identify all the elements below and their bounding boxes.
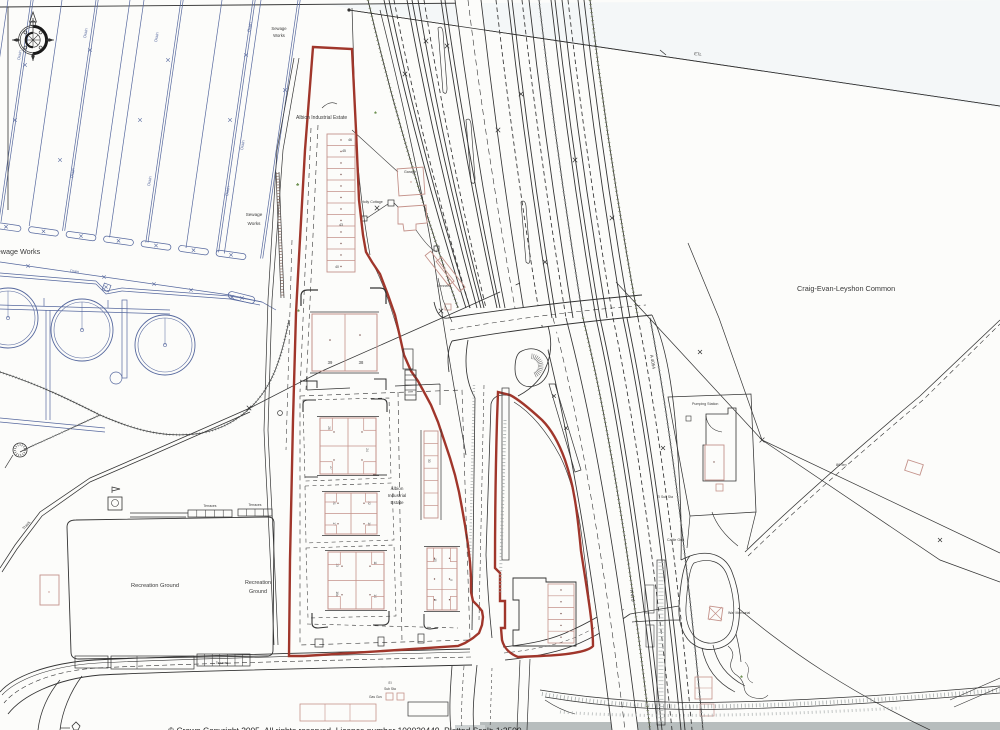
svg-text:♣: ♣ <box>297 308 300 313</box>
svg-text:© Crown Copyright 2005. All ri: © Crown Copyright 2005. All rights reser… <box>168 726 522 730</box>
svg-text:43: 43 <box>339 223 343 227</box>
svg-text:Estate: Estate <box>390 500 403 505</box>
svg-text:Industrial: Industrial <box>388 493 407 498</box>
svg-text:16a: 16a <box>335 591 339 597</box>
svg-text:86.9m: 86.9m <box>836 463 847 467</box>
svg-text:Cattle Grid: Cattle Grid <box>667 538 684 542</box>
svg-text:Works: Works <box>273 33 285 38</box>
svg-text:14: 14 <box>373 594 377 598</box>
svg-text:Ground: Ground <box>249 589 267 595</box>
svg-text:Sewage: Sewage <box>246 212 263 217</box>
svg-text:Works: Works <box>248 221 262 226</box>
svg-text:El Sub Sta: El Sub Sta <box>657 495 673 499</box>
svg-text:Pumping Station: Pumping Station <box>692 402 718 406</box>
svg-text:Kennels: Kennels <box>437 284 450 288</box>
svg-text:Gas Gov: Gas Gov <box>369 695 382 699</box>
svg-text:♣: ♣ <box>740 674 743 679</box>
svg-text:Sewage: Sewage <box>271 26 287 31</box>
svg-text:Albion Industrial Estate: Albion Industrial Estate <box>296 115 347 121</box>
svg-text:45: 45 <box>342 149 346 153</box>
svg-text:17: 17 <box>332 522 336 526</box>
svg-text:26: 26 <box>327 426 331 430</box>
svg-text:38: 38 <box>359 360 364 365</box>
svg-text:War Memorial: War Memorial <box>728 611 750 615</box>
svg-text:24: 24 <box>365 448 369 452</box>
svg-text:46: 46 <box>348 138 352 142</box>
svg-text:39: 39 <box>328 360 333 365</box>
svg-text:Recreation Ground: Recreation Ground <box>131 583 179 589</box>
svg-text:18: 18 <box>367 522 371 526</box>
svg-text:Sub Sta: Sub Sta <box>384 687 396 691</box>
svg-text:40: 40 <box>335 265 339 269</box>
svg-text:Craig-Evan-Leyshon Common: Craig-Evan-Leyshon Common <box>797 284 895 293</box>
svg-text:Terraces: Terraces <box>203 504 216 508</box>
svg-text:30: 30 <box>427 459 431 463</box>
svg-text:Terraces: Terraces <box>248 503 261 507</box>
svg-text:Holly Cottage: Holly Cottage <box>361 200 383 204</box>
svg-text:El: El <box>389 681 392 685</box>
svg-text:Recreation: Recreation <box>245 580 271 586</box>
svg-text:13: 13 <box>335 563 339 567</box>
svg-text:Albion: Albion <box>391 486 404 491</box>
svg-text:Sewage Works: Sewage Works <box>0 247 41 256</box>
svg-text:♣: ♣ <box>374 110 377 115</box>
svg-text:Garage: Garage <box>404 170 416 174</box>
